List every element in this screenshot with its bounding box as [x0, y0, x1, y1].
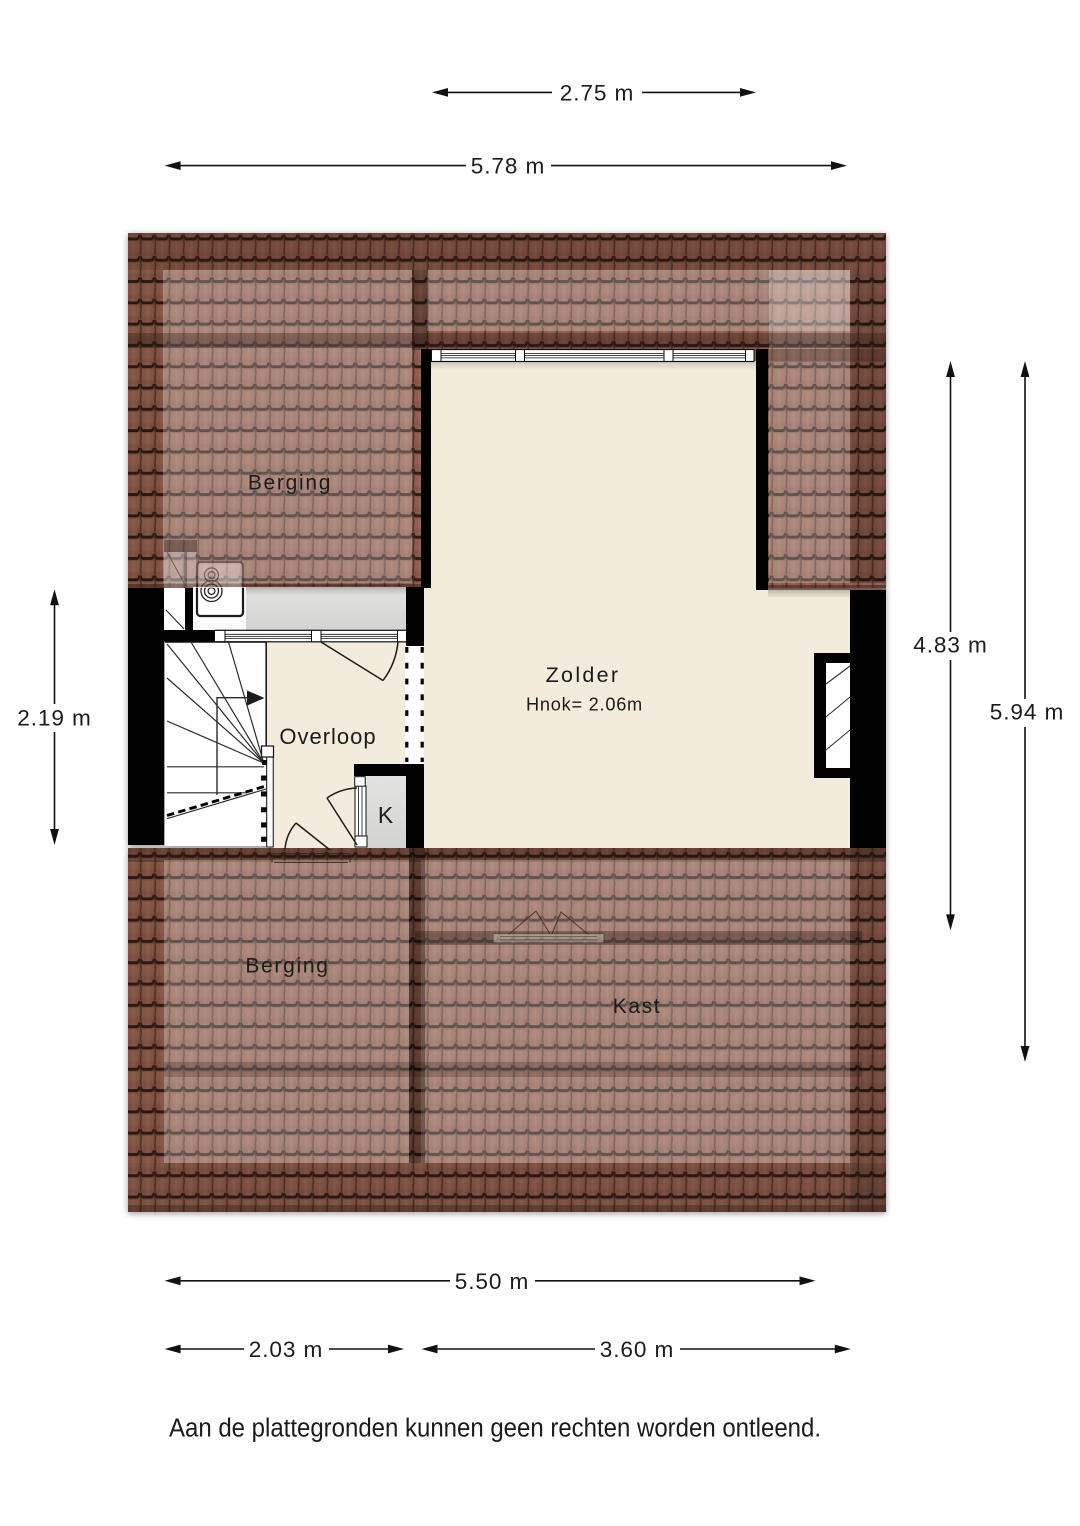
svg-text:4.83 m: 4.83 m — [913, 633, 987, 658]
svg-text:Aan de plattegronden kunnen ge: Aan de plattegronden kunnen geen rechten… — [169, 1414, 821, 1442]
svg-text:K: K — [378, 802, 394, 828]
svg-text:2.03 m: 2.03 m — [249, 1337, 323, 1362]
svg-text:3.60 m: 3.60 m — [600, 1337, 674, 1362]
svg-text:5.94 m: 5.94 m — [990, 700, 1064, 725]
svg-text:5.78 m: 5.78 m — [471, 154, 545, 179]
svg-text:Hnok= 2.06m: Hnok= 2.06m — [526, 695, 643, 715]
svg-text:Overloop: Overloop — [279, 724, 376, 749]
svg-text:2.19 m: 2.19 m — [17, 706, 91, 731]
svg-text:Berging: Berging — [248, 472, 332, 495]
svg-text:5.50 m: 5.50 m — [455, 1269, 529, 1294]
svg-text:Kast: Kast — [613, 995, 661, 1018]
svg-text:Berging: Berging — [245, 955, 329, 978]
svg-text:Zolder: Zolder — [546, 663, 621, 687]
svg-text:2.75 m: 2.75 m — [560, 80, 634, 105]
